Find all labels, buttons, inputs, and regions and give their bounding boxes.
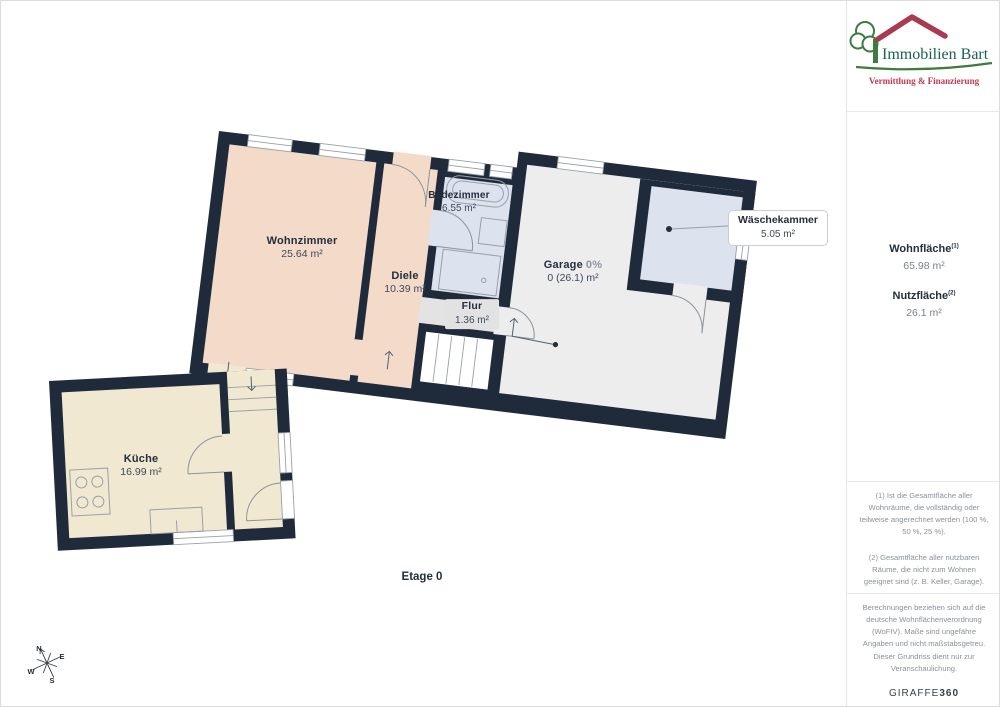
room-label-wohnzimmer: Wohnzimmer 25.64 m² — [267, 234, 338, 262]
wohnflaeche-value: 65.98 m² — [847, 260, 1000, 272]
footnotes: (1) Ist die Gesamtfläche aller Wohnräume… — [847, 490, 1000, 601]
logo-swoosh — [856, 63, 992, 69]
disclaimer-text: Berechnungen beziehen sich auf die deuts… — [856, 602, 992, 675]
floorplan-page: N E W S Wohnzimmer 25.64 m² Diele 10.39 … — [0, 0, 1000, 707]
compass-s: S — [49, 676, 54, 685]
giraffe360-brand: GIRAFFE360 — [856, 688, 992, 699]
nutzflaeche-value: 26.1 m² — [847, 307, 1000, 319]
compass-n: N — [36, 644, 41, 653]
logo-subtitle: Vermittlung & Finanzierung — [869, 76, 980, 86]
floor-label: Etage 0 — [402, 571, 443, 583]
compass-e: E — [59, 652, 64, 661]
room-label-waeschekammer: Wäschekammer 5.05 m² — [728, 210, 828, 246]
bottom-note: Berechnungen beziehen sich auf die deuts… — [847, 602, 1000, 699]
room-label-kueche: Küche 16.99 m² — [120, 452, 161, 480]
room-wohnzimmer — [203, 144, 377, 380]
room-label-badezimmer: Badezimmer 6.55 m² — [428, 189, 489, 215]
footnote-1: (1) Ist die Gesamtfläche aller Wohnräume… — [858, 490, 990, 539]
info-sidebar: Immobilien Bart Vermittlung & Finanzieru… — [846, 1, 1000, 707]
tree-icon — [851, 22, 879, 63]
kitchen-wing — [49, 369, 296, 551]
company-logo: Immobilien Bart Vermittlung & Finanzieru… — [847, 9, 1000, 108]
nutzflaeche-label: Nutzfläche(2) — [847, 290, 1000, 302]
company-logo-graphic: Immobilien Bart Vermittlung & Finanzieru… — [848, 9, 1000, 103]
logo-title: Immobilien Bart — [882, 46, 989, 63]
room-label-diele: Diele 10.39 m² — [384, 269, 425, 297]
plan-area: N E W S Wohnzimmer 25.64 m² Diele 10.39 … — [1, 1, 846, 707]
sidebar-divider-middle — [847, 481, 1000, 482]
area-summary: Wohnfläche(1) 65.98 m² Nutzfläche(2) 26.… — [847, 243, 1000, 337]
sidebar-divider-bottom — [847, 593, 1000, 594]
kitchen-corridor — [227, 369, 283, 529]
sidebar-divider-top — [847, 111, 1000, 112]
stairwell — [420, 332, 494, 390]
room-label-garage: Garage0% 0 (26.1) m² — [544, 258, 602, 286]
room-label-flur: Flur 1.36 m² — [445, 299, 499, 329]
compass-w: W — [27, 667, 35, 676]
floorplan-svg: N E W S — [1, 1, 846, 707]
compass-icon: N E W S — [26, 642, 69, 685]
footnote-2: (2) Gesamtfläche aller nutzbaren Räume, … — [858, 552, 990, 588]
wohnflaeche-label: Wohnfläche(1) — [847, 243, 1000, 255]
roof-icon — [878, 17, 945, 39]
